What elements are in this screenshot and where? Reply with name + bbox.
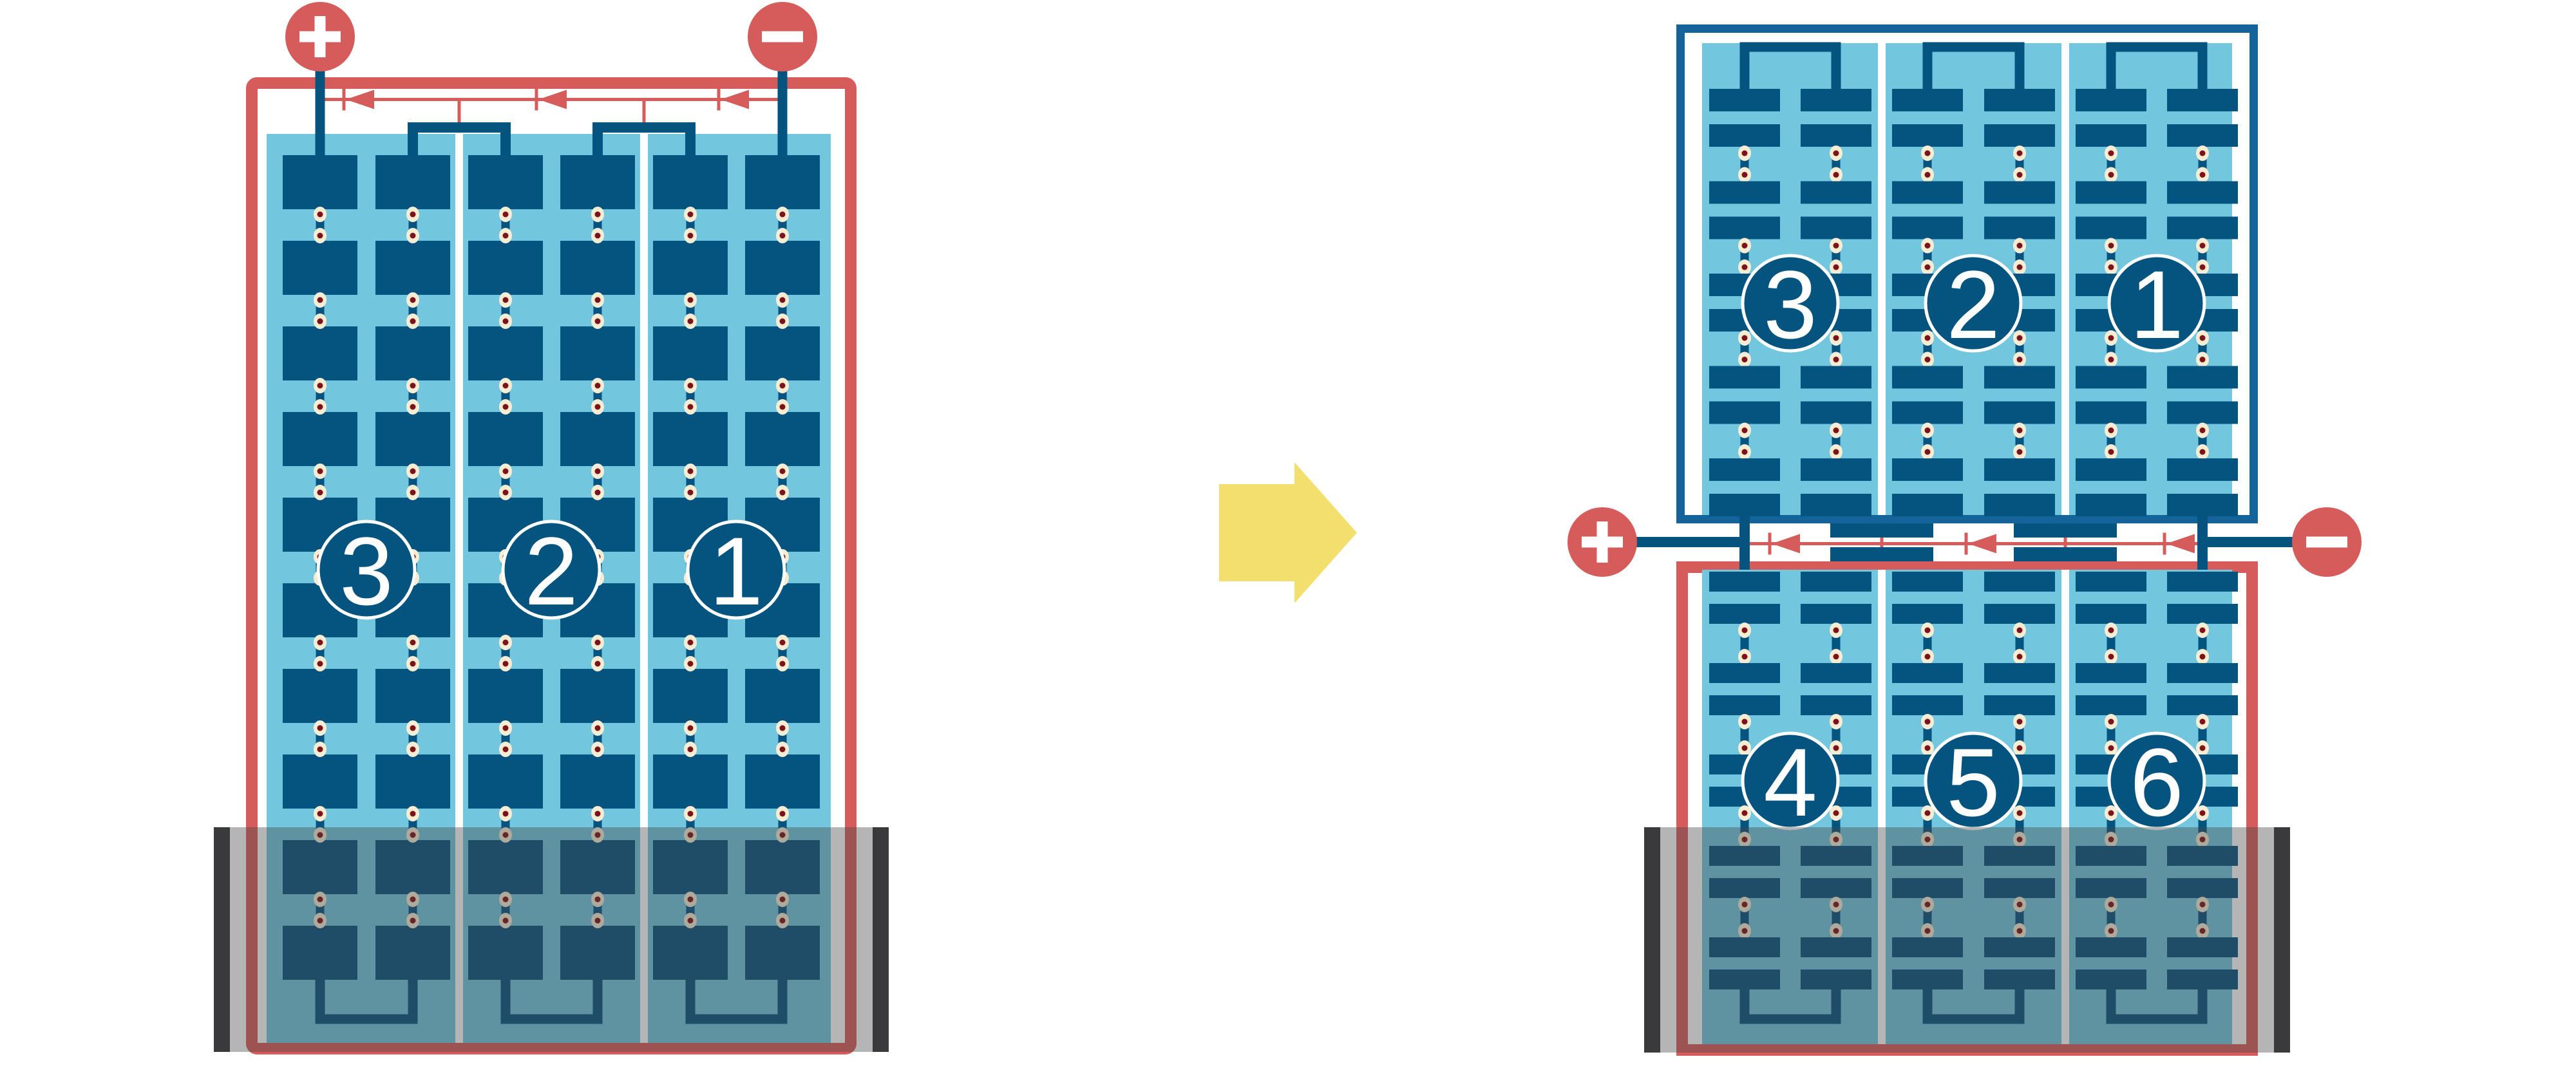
current-direction-line: [320, 89, 782, 127]
right-arrow-icon: [1219, 462, 1357, 603]
diagram-canvas: 3 2 1 3 2 1 4 5 6: [0, 0, 2576, 1068]
right-top-cell-label-2: 2: [1946, 250, 2000, 359]
positive-terminal: [285, 2, 355, 71]
minus-icon: [2306, 537, 2347, 548]
clamp-stand: [1644, 827, 2290, 1053]
left-cell-label-1: 1: [709, 517, 762, 625]
right-bottom-cell-label-6: 6: [2130, 728, 2183, 836]
negative-terminal: [748, 2, 817, 71]
negative-terminal: [2292, 507, 2362, 577]
current-direction-line: [1750, 527, 2199, 561]
minus-icon: [762, 32, 803, 42]
right-top-cell-label-3: 3: [1763, 250, 1817, 359]
transform-arrow: [1219, 462, 1357, 603]
battery-reconfiguration-diagram: 3 2 1 3 2 1 4 5 6: [0, 0, 2576, 1068]
clamp-stand: [214, 827, 889, 1052]
right-bottom-cell-label-5: 5: [1946, 728, 2000, 836]
left-cell-label-2: 2: [524, 517, 578, 625]
stacked-battery-after: [1567, 29, 2362, 1053]
right-bottom-cell-label-4: 4: [1763, 728, 1817, 836]
left-cell-label-3: 3: [339, 517, 393, 625]
right-top-cell-label-1: 1: [2130, 250, 2183, 359]
positive-terminal: [1567, 507, 1637, 577]
